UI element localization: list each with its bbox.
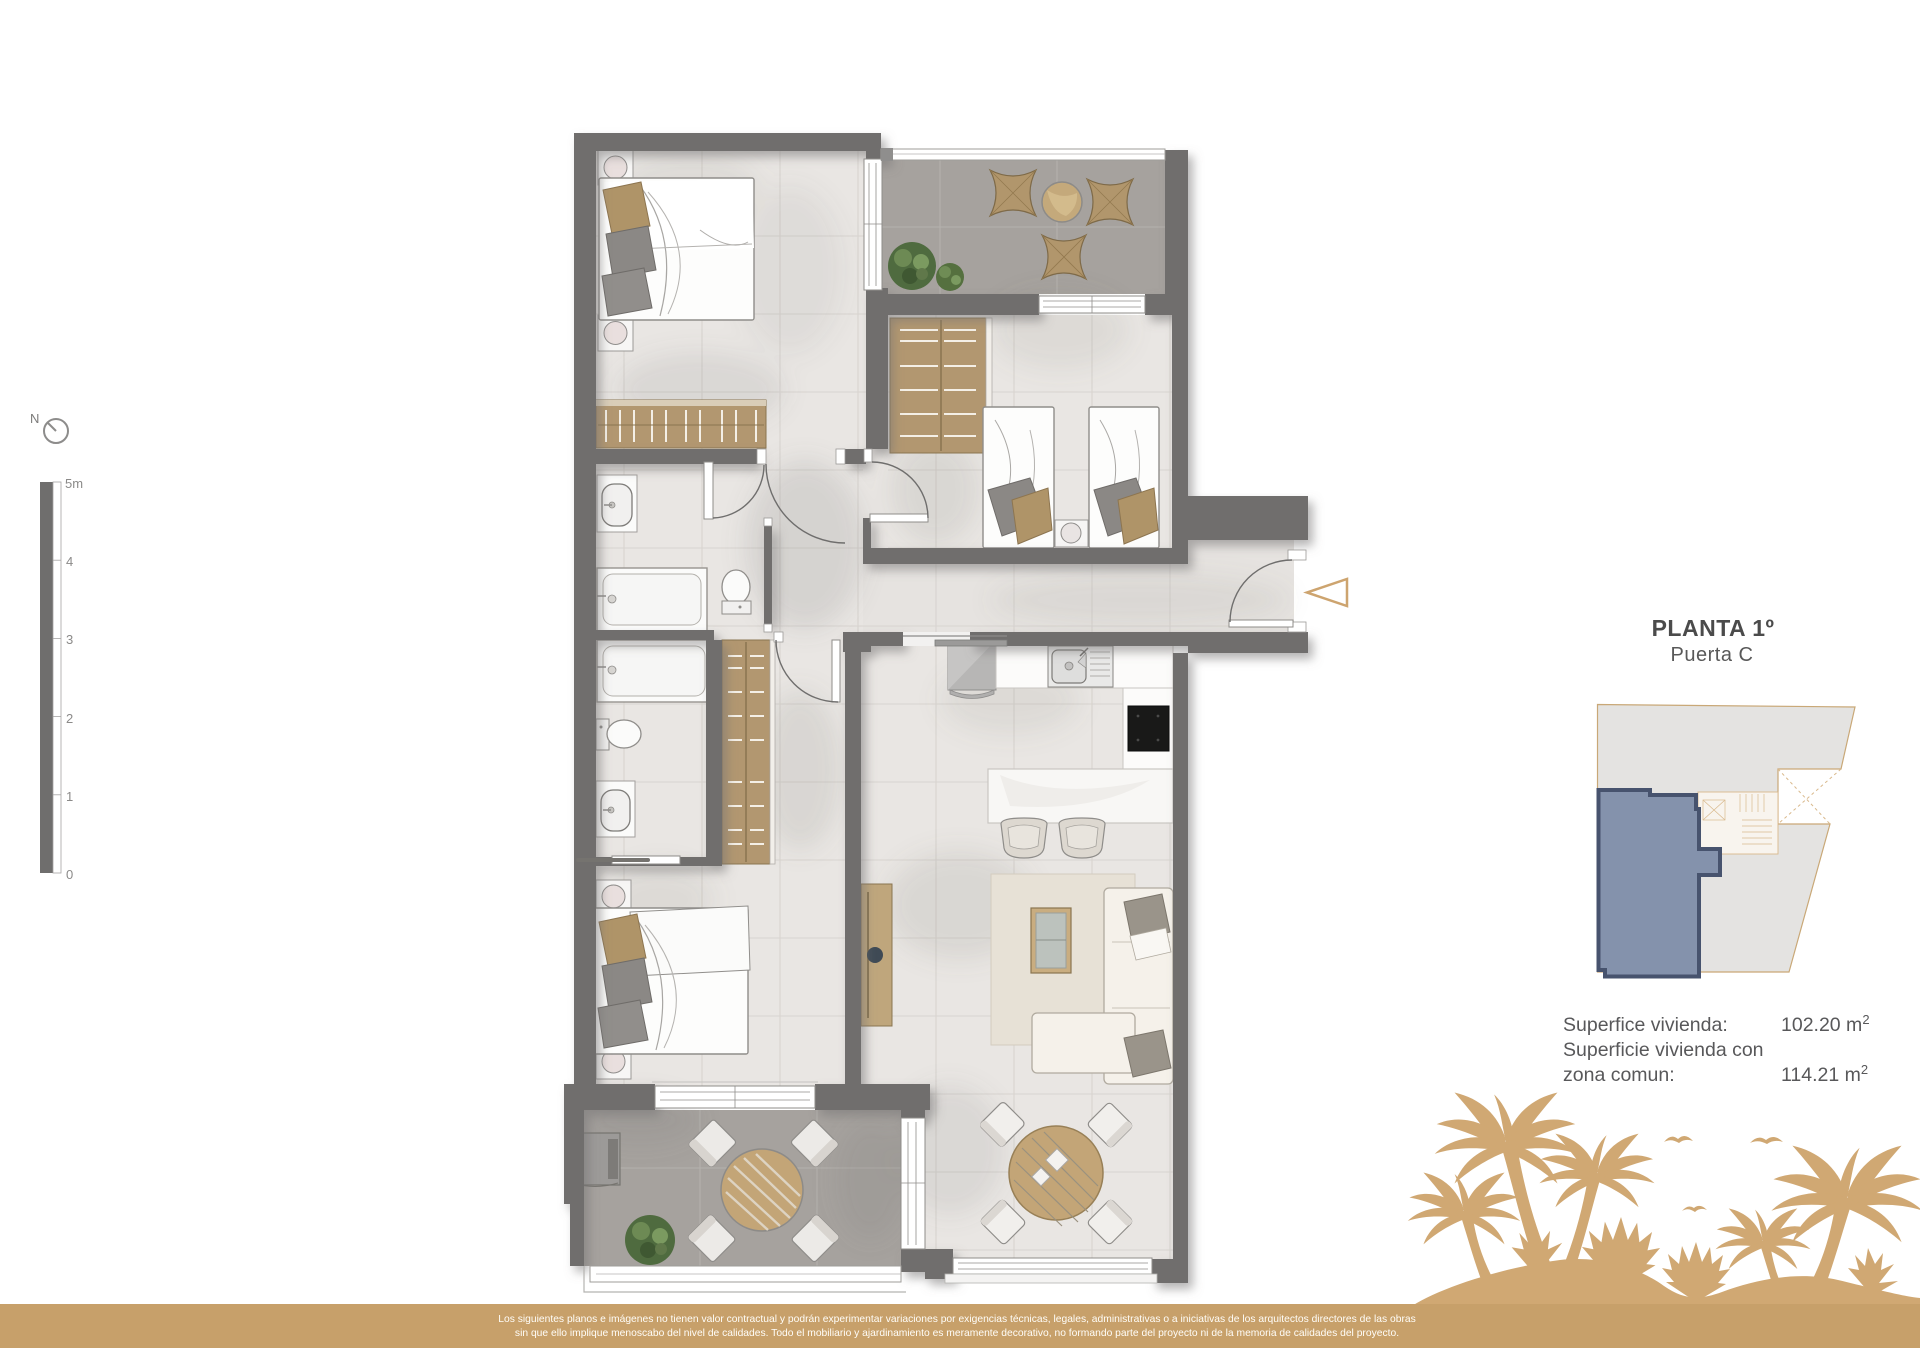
svg-text:5m: 5m [65,476,83,491]
svg-text:0: 0 [66,867,73,882]
svg-text:N: N [30,411,39,426]
svg-text:3: 3 [66,632,73,647]
svg-text:2: 2 [66,711,73,726]
svg-text:sin que ello implique menoscab: sin que ello implique menoscabo del nive… [515,1328,1399,1339]
svg-text:Superficie vivienda con: Superficie vivienda con [1563,1039,1764,1061]
svg-text:zona comun:: zona comun: [1563,1064,1675,1086]
svg-text:102.20 m2: 102.20 m2 [1781,1012,1870,1036]
svg-text:1: 1 [66,789,73,804]
svg-text:PLANTA 1º: PLANTA 1º [1652,615,1775,641]
svg-text:4: 4 [66,554,73,569]
svg-text:Superfice vivienda:: Superfice vivienda: [1563,1014,1728,1036]
svg-text:Puerta C: Puerta C [1671,644,1754,666]
svg-text:Los siguientes planos e imágen: Los siguientes planos e imágenes no tien… [498,1314,1416,1325]
svg-text:114.21 m2: 114.21 m2 [1781,1062,1868,1086]
